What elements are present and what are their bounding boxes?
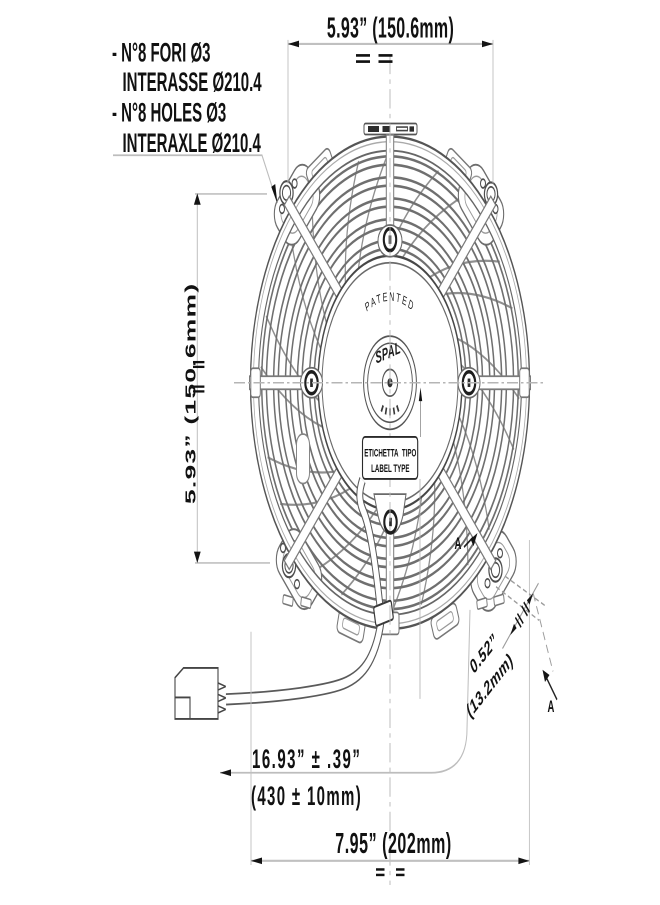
- svg-text:5.93” (150.6mm): 5.93” (150.6mm): [327, 12, 454, 44]
- svg-text:16.93” ± .39”: 16.93” ± .39”: [252, 745, 361, 775]
- svg-text:INTERAXLE Ø210.4: INTERAXLE Ø210.4: [123, 129, 261, 159]
- svg-text:- N°8 HOLES Ø3: - N°8 HOLES Ø3: [112, 98, 226, 128]
- svg-text:ETICHETTA TIPO: ETICHETTA TIPO: [364, 447, 416, 459]
- svg-text:- N°8 FORI Ø3: - N°8 FORI Ø3: [112, 38, 210, 68]
- svg-text:(430 ± 10mm): (430 ± 10mm): [251, 782, 362, 812]
- svg-text:LABEL TYPE: LABEL TYPE: [371, 462, 409, 474]
- svg-text:A: A: [548, 697, 555, 715]
- svg-text:5.93” (150.6mm): 5.93” (150.6mm): [182, 283, 199, 504]
- svg-text:INTERASSE Ø210.4: INTERASSE Ø210.4: [123, 68, 262, 98]
- svg-text:A: A: [455, 534, 462, 552]
- svg-text:7.95” (202mm): 7.95” (202mm): [335, 827, 451, 859]
